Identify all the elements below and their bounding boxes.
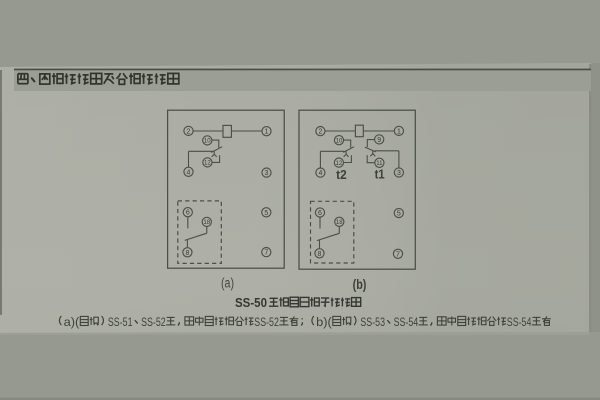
svg-text:18: 18 [203, 219, 210, 226]
svg-text:10: 10 [204, 138, 211, 145]
svg-text:6: 6 [186, 210, 190, 217]
svg-text:18: 18 [336, 219, 343, 226]
svg-text:1: 1 [397, 128, 401, 135]
svg-text:12: 12 [204, 160, 211, 167]
svg-text:2: 2 [187, 128, 191, 135]
svg-text:SS-52: SS-52 [141, 315, 166, 329]
svg-text:3: 3 [397, 170, 401, 177]
svg-text:3: 3 [265, 170, 269, 177]
svg-text:11: 11 [376, 160, 383, 167]
svg-text:SS-50: SS-50 [235, 295, 267, 310]
svg-text:SS-54: SS-54 [394, 315, 419, 329]
svg-text:12: 12 [336, 160, 343, 167]
svg-text:b)(: b)( [316, 315, 332, 329]
svg-text:(a): (a) [221, 276, 234, 291]
svg-text:(b): (b) [353, 277, 367, 292]
svg-text:SS-54: SS-54 [507, 315, 532, 329]
svg-text:4: 4 [318, 170, 322, 177]
svg-text:SS-52: SS-52 [254, 315, 279, 329]
svg-text:7: 7 [396, 251, 400, 258]
svg-text:7: 7 [264, 250, 268, 257]
svg-text:5: 5 [264, 210, 268, 217]
svg-text:8: 8 [185, 250, 189, 257]
svg-text:2: 2 [318, 129, 322, 136]
svg-text:9: 9 [377, 137, 381, 144]
svg-text:t2: t2 [336, 168, 347, 182]
svg-text:t1: t1 [375, 168, 385, 182]
svg-text:8: 8 [318, 251, 322, 258]
svg-text:10: 10 [336, 137, 343, 144]
svg-text:SS-51: SS-51 [108, 315, 133, 329]
svg-text:5: 5 [397, 211, 401, 218]
svg-text:1: 1 [265, 129, 269, 136]
svg-text:a)(: a)( [64, 315, 80, 329]
svg-text:4: 4 [187, 169, 191, 176]
svg-text:SS-53: SS-53 [360, 315, 385, 329]
svg-text:6: 6 [318, 210, 322, 217]
